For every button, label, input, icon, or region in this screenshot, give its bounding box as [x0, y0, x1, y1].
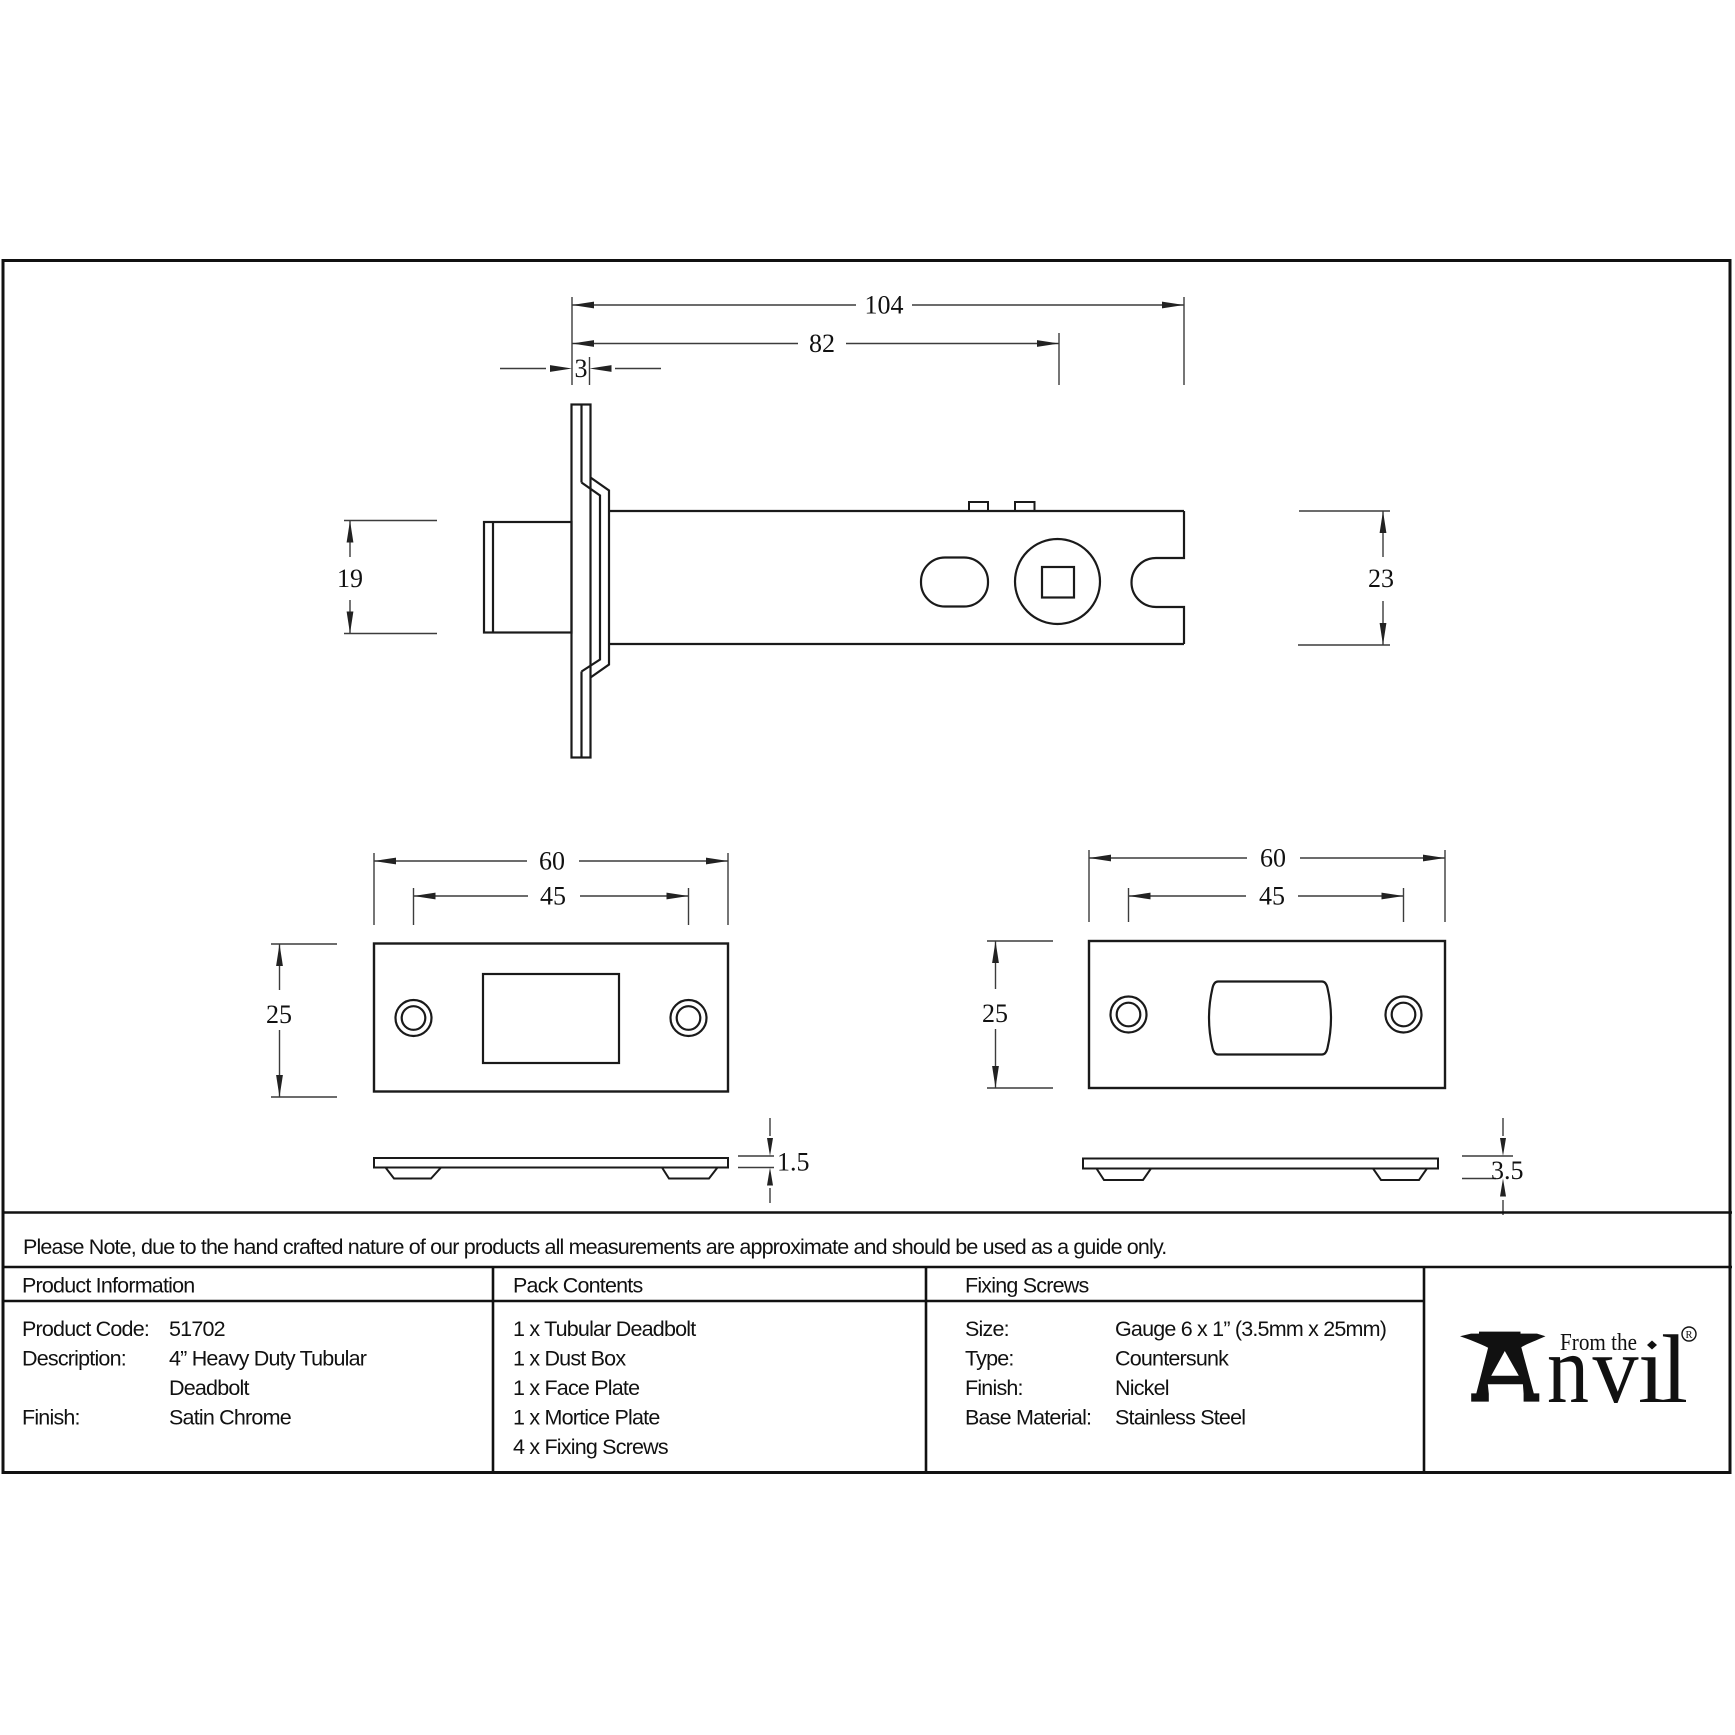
svg-text:4” Heavy Duty Tubular: 4” Heavy Duty Tubular	[169, 1347, 367, 1371]
svg-text:4 x Fixing Screws: 4 x Fixing Screws	[513, 1435, 668, 1459]
svg-text:Product Information: Product Information	[22, 1274, 194, 1298]
svg-text:Base Material:: Base Material:	[965, 1406, 1091, 1430]
svg-text:Countersunk: Countersunk	[1115, 1347, 1229, 1371]
svg-text:3.5: 3.5	[1491, 1156, 1524, 1185]
svg-text:v: v	[1593, 1316, 1639, 1423]
svg-text:1 x Face Plate: 1 x Face Plate	[513, 1376, 639, 1400]
svg-text:R: R	[1685, 1330, 1692, 1341]
svg-text:60: 60	[1260, 844, 1286, 873]
svg-text:1.5: 1.5	[777, 1148, 810, 1177]
svg-text:Description:: Description:	[22, 1347, 126, 1371]
svg-text:Finish:: Finish:	[965, 1376, 1023, 1400]
svg-text:1 x Dust Box: 1 x Dust Box	[513, 1347, 626, 1371]
svg-text:45: 45	[540, 882, 566, 911]
svg-text:Finish:: Finish:	[22, 1406, 80, 1430]
svg-text:Stainless Steel: Stainless Steel	[1115, 1406, 1245, 1430]
svg-text:n: n	[1547, 1316, 1589, 1423]
svg-text:3: 3	[575, 354, 588, 383]
svg-text:60: 60	[539, 847, 565, 876]
svg-text:Satin Chrome: Satin Chrome	[169, 1406, 291, 1430]
svg-text:45: 45	[1259, 882, 1285, 911]
svg-text:19: 19	[337, 564, 363, 593]
svg-text:Deadbolt: Deadbolt	[169, 1376, 249, 1400]
svg-text:25: 25	[266, 1000, 292, 1029]
svg-text:Please Note, due to the hand c: Please Note, due to the hand crafted nat…	[23, 1235, 1166, 1259]
svg-text:Gauge 6 x 1” (3.5mm x 25mm): Gauge 6 x 1” (3.5mm x 25mm)	[1115, 1317, 1386, 1341]
svg-text:Type:: Type:	[965, 1347, 1014, 1371]
svg-text:Pack Contents: Pack Contents	[513, 1274, 642, 1298]
svg-text:82: 82	[809, 329, 835, 358]
svg-text:51702: 51702	[169, 1317, 225, 1341]
svg-text:104: 104	[865, 291, 904, 320]
svg-text:l: l	[1661, 1316, 1688, 1423]
svg-text:25: 25	[982, 999, 1008, 1028]
svg-text:Size:: Size:	[965, 1317, 1009, 1341]
svg-text:Fixing Screws: Fixing Screws	[965, 1274, 1088, 1298]
svg-text:1 x Tubular Deadbolt: 1 x Tubular Deadbolt	[513, 1317, 696, 1341]
svg-text:Product Code:: Product Code:	[22, 1317, 149, 1341]
svg-text:23: 23	[1368, 564, 1394, 593]
svg-text:1 x Mortice Plate: 1 x Mortice Plate	[513, 1406, 660, 1430]
svg-text:Nickel: Nickel	[1115, 1376, 1169, 1400]
